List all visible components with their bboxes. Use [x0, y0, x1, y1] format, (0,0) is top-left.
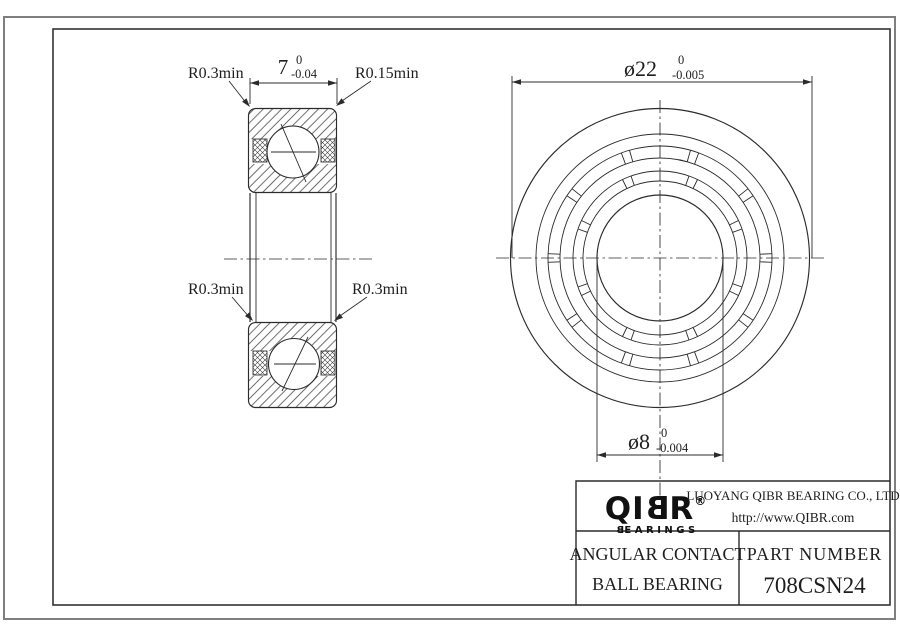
product-title: ANGULAR CONTACT BALL BEARING	[576, 539, 739, 599]
bore-dim-lower-tol: -0.004	[656, 441, 689, 455]
company-name: LUOYANG QIBR BEARING CO., LTD	[686, 488, 899, 504]
bore-dim-nominal: ø8	[628, 429, 650, 454]
section-bottom-half	[249, 323, 337, 408]
company-info: LUOYANG QIBR BEARING CO., LTD http://www…	[698, 488, 888, 526]
leader-top-right-label: R0.15min	[355, 65, 419, 82]
product-line1: ANGULAR CONTACT	[569, 539, 745, 569]
page-borders	[4, 17, 895, 619]
product-line2: BALL BEARING	[592, 569, 723, 599]
drawing-page: 7 0 -0.04 R0.3min R0.15min R0.3min R0.3m…	[0, 0, 900, 636]
cage-cross-section	[253, 139, 267, 162]
leader-mid-left-label: R0.3min	[188, 281, 244, 298]
section-top-half	[249, 109, 337, 193]
part-number-label: PART NUMBER	[747, 541, 882, 567]
cage-cross-section	[321, 139, 335, 162]
section-view: 7 0 -0.04 R0.3min R0.15min R0.3min R0.3m…	[188, 53, 419, 408]
width-dimension: 7 0 -0.04	[250, 53, 337, 104]
front-view: ø22 0 -0.005 ø8 0 -0.004	[496, 53, 824, 500]
company-website: http://www.QIBR.com	[732, 510, 855, 526]
width-dim-upper-tol: 0	[296, 53, 302, 67]
outer-dia-dimension: ø22 0 -0.005	[512, 53, 812, 258]
od-dim-upper-tol: 0	[678, 53, 684, 67]
bore-dim-upper-tol: 0	[661, 426, 667, 440]
leader-mid-right-label: R0.3min	[352, 281, 408, 298]
od-dim-nominal: ø22	[624, 56, 657, 81]
part-number-value: 708CSN24	[763, 573, 865, 599]
outer-border	[4, 17, 895, 619]
width-dim-nominal: 7	[278, 55, 289, 79]
leader-top-left-label: R0.3min	[188, 65, 244, 82]
cage-cross-section	[321, 351, 335, 375]
part-number-cell: PART NUMBER 708CSN24	[739, 541, 890, 599]
cage-cross-section	[253, 351, 267, 375]
od-dim-lower-tol: -0.005	[672, 68, 704, 82]
width-dim-lower-tol: -0.04	[291, 67, 318, 81]
